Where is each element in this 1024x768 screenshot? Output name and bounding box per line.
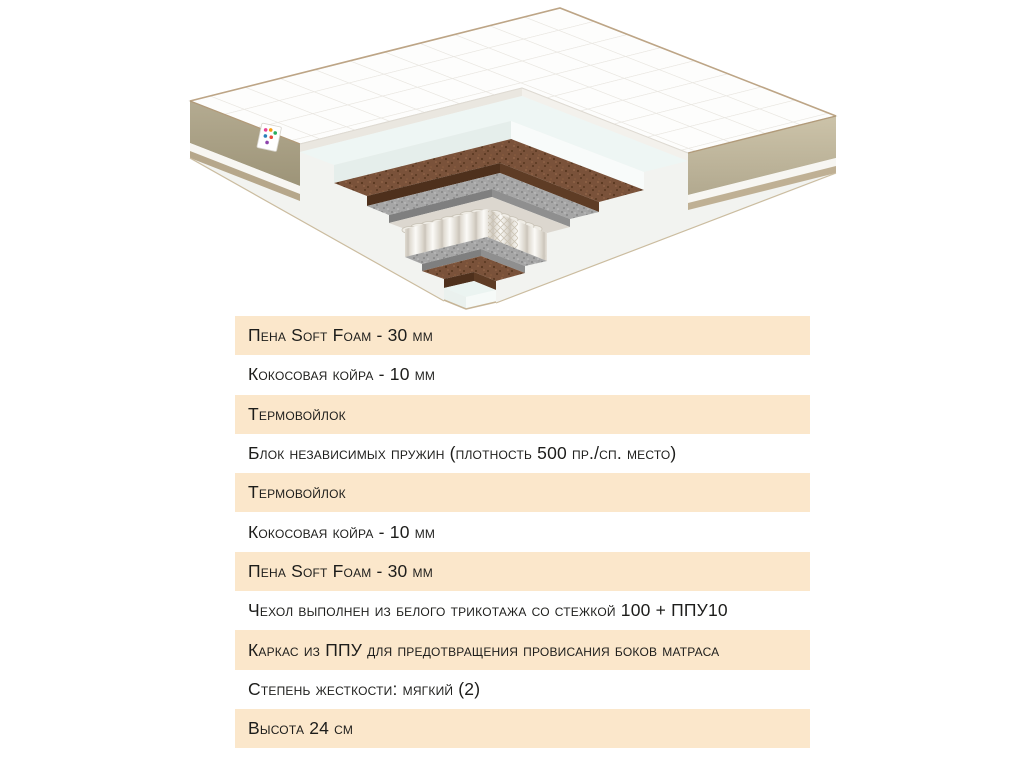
layer-row-label: Блок независимых пружин (плотность 500 п… [248, 443, 676, 464]
layer-row-foam-bottom: Пена Soft Foam - 30 мм [235, 552, 810, 591]
layer-row-coir-top: Кокосовая койра - 10 мм [235, 355, 810, 394]
layer-row-label: Термовойлок [248, 404, 346, 425]
layers-table: Пена Soft Foam - 30 мм Кокосовая койра -… [235, 316, 810, 748]
layer-row-label: Термовойлок [248, 482, 346, 503]
layer-row-label: Пена Soft Foam - 30 мм [248, 561, 433, 582]
layer-row-label: Высота 24 см [248, 718, 353, 739]
layer-row-label: Каркас из ППУ для предотвращения провиса… [248, 640, 719, 661]
layer-row-label: Пена Soft Foam - 30 мм [248, 325, 433, 346]
layer-row-foam-top: Пена Soft Foam - 30 мм [235, 316, 810, 355]
layer-row-frame: Каркас из ППУ для предотвращения провиса… [235, 630, 810, 669]
layer-row-label: Кокосовая койра - 10 мм [248, 364, 435, 385]
layer-row-firmness: Степень жесткости: мягкий (2) [235, 670, 810, 709]
layer-row-label: Степень жесткости: мягкий (2) [248, 679, 480, 700]
layer-row-label: Кокосовая койра - 10 мм [248, 522, 435, 543]
layer-row-label: Чехол выполнен из белого трикотажа со ст… [248, 600, 728, 621]
product-page: Пена Soft Foam - 30 мм Кокосовая койра -… [0, 0, 1024, 768]
layer-row-cover: Чехол выполнен из белого трикотажа со ст… [235, 591, 810, 630]
layer-row-felt-bottom: Термовойлок [235, 473, 810, 512]
layer-row-coir-bottom: Кокосовая койра - 10 мм [235, 512, 810, 551]
layer-row-springs: Блок независимых пружин (плотность 500 п… [235, 434, 810, 473]
layer-row-height: Высота 24 см [235, 709, 810, 748]
layer-row-felt-top: Термовойлок [235, 395, 810, 434]
